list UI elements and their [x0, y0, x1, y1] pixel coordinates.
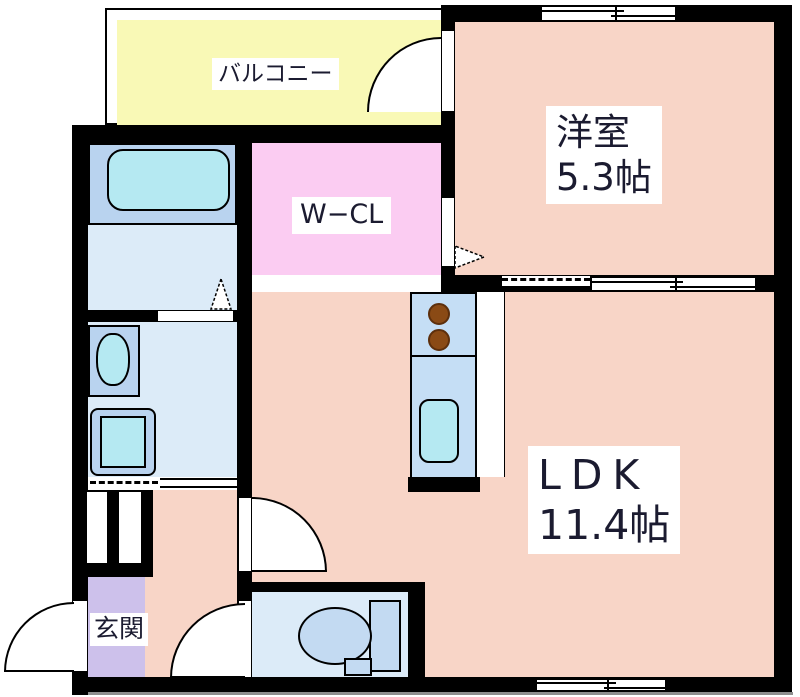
ldk-name: LDK — [538, 450, 670, 500]
wall-toilet-right — [408, 582, 425, 677]
window-rail — [537, 682, 616, 684]
wall-top-inner — [72, 125, 455, 143]
balcony-door-leaf — [441, 30, 455, 112]
wcl-door-direction-icon — [454, 245, 486, 269]
storage-door-slot — [119, 492, 141, 563]
window-top — [540, 5, 677, 22]
ldk-door-leaf — [238, 497, 252, 572]
ground-line — [72, 692, 793, 695]
toilet-icon — [298, 607, 372, 665]
toilet-tank — [369, 600, 401, 672]
western-room-name: 洋室 — [556, 110, 652, 155]
balcony-label: バルコニー — [212, 58, 339, 90]
ldk-label: LDK 11.4帖 — [528, 446, 680, 554]
floor-plan: バルコニー 洋室 5.3帖 W−CL LDK 11.4帖 玄関 — [0, 0, 800, 697]
dashed-line — [502, 278, 590, 281]
sliding-track — [160, 478, 237, 488]
washroom-door-band — [88, 477, 237, 490]
sliding-door-rail — [592, 281, 683, 283]
dashed-line — [90, 481, 158, 484]
western-room-label: 洋室 5.3帖 — [546, 106, 662, 204]
window-rail — [604, 687, 665, 689]
window-tick — [607, 680, 609, 690]
sliding-door-tick — [675, 278, 677, 290]
bathroom-door-direction-icon — [209, 277, 233, 311]
window-bottom — [535, 678, 667, 692]
window-rail — [542, 10, 624, 12]
western-room-size: 5.3帖 — [556, 155, 652, 200]
window-tick — [615, 7, 617, 20]
kitchen-counter — [410, 292, 477, 480]
sliding-door-rail — [670, 286, 755, 288]
entrance-label: 玄関 — [90, 613, 148, 646]
entrance-door-leaf — [72, 600, 88, 672]
entrance-door-swing-arc — [4, 602, 74, 672]
wall-right — [774, 5, 792, 692]
stove-burner-icon — [428, 329, 450, 351]
wcl-label: W−CL — [292, 197, 391, 234]
window-rail — [611, 15, 675, 17]
wcl-door-opening — [441, 197, 455, 267]
wall-wcl-left — [237, 125, 252, 292]
wall-kitchen-base — [408, 477, 480, 492]
storage-door-slot — [87, 492, 107, 563]
bathroom-door-opening — [158, 311, 233, 321]
stove-burner-icon — [428, 303, 450, 325]
ldk-size: 11.4帖 — [538, 500, 670, 550]
counter-divider — [412, 355, 475, 357]
wall-toilet-top — [237, 582, 425, 592]
kitchen-floor-strip — [477, 292, 505, 477]
washbasin-icon — [96, 333, 130, 386]
sliding-door-wr-ldk — [590, 276, 757, 292]
toilet-step — [344, 658, 372, 676]
partition-dashed-opening — [502, 276, 590, 286]
bathtub-icon — [107, 149, 230, 211]
washing-machine-drum — [100, 416, 146, 468]
wall-bottom — [72, 677, 792, 692]
kitchen-sink-icon — [419, 399, 459, 463]
hallway-upper — [153, 490, 237, 577]
